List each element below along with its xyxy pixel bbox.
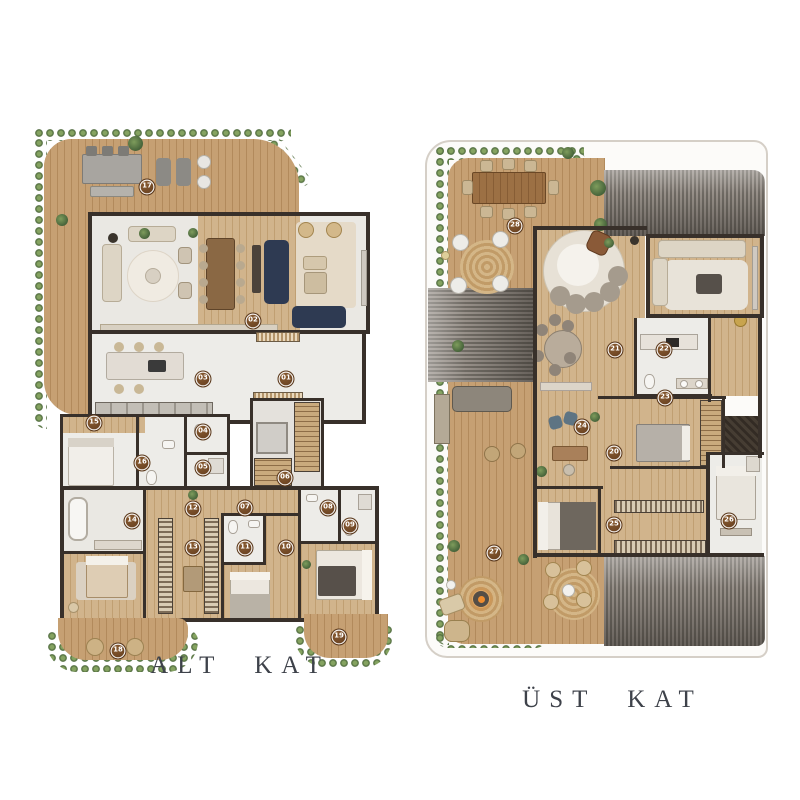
cooktop <box>666 338 679 347</box>
outdoor-lounge-chair <box>450 277 467 294</box>
curved-sofa-segment <box>566 294 586 314</box>
shower <box>746 456 760 472</box>
floor-lamp <box>441 251 450 260</box>
basket-chair <box>444 620 470 642</box>
stair-hall-floor <box>708 318 760 396</box>
outdoor-chair <box>524 160 537 172</box>
fire-flame <box>478 596 485 603</box>
outdoor-sofa <box>452 386 512 412</box>
outdoor-lounge-chair <box>576 592 592 608</box>
wall <box>708 318 711 402</box>
wall <box>535 486 603 489</box>
indoor-plant <box>604 238 614 248</box>
caption-alt-kat: ALT KAT <box>120 652 360 680</box>
toilet <box>644 374 655 389</box>
curved-sofa-segment <box>608 266 628 286</box>
wall <box>598 396 726 399</box>
outdoor-lounge-chair <box>576 560 592 576</box>
outdoor-chair <box>462 180 473 195</box>
bedroom-wing-floor <box>645 396 708 554</box>
bed-pillows <box>538 502 548 550</box>
round-dining-table <box>544 330 582 368</box>
wall <box>646 234 650 318</box>
outdoor-chair <box>502 208 515 220</box>
wall <box>598 486 601 557</box>
terrace-plant <box>448 540 460 552</box>
ceiling-lamp <box>630 236 639 245</box>
dining-chair <box>536 324 548 336</box>
console <box>540 382 592 391</box>
terrace-plant <box>518 554 529 565</box>
outdoor-chair <box>480 160 493 172</box>
terrace-plant <box>536 466 547 477</box>
roof-bottom-right <box>604 556 765 646</box>
wall <box>646 314 764 318</box>
outdoor-chair <box>524 206 537 218</box>
wall <box>646 234 764 238</box>
wicker-chair <box>484 446 500 462</box>
wall <box>533 553 764 557</box>
wall <box>760 234 764 318</box>
terrace-plant <box>562 147 574 159</box>
wardrobe <box>614 500 704 513</box>
outdoor-lounge-chair <box>543 594 559 610</box>
wall <box>533 226 537 558</box>
outdoor-dining-table <box>472 172 546 204</box>
floorplan-canvas: 01020304050607080910111213141516171819 2… <box>0 0 800 800</box>
coffee-table <box>696 274 722 294</box>
dining-chair <box>564 352 576 364</box>
indoor-plant <box>590 412 600 422</box>
desk <box>552 446 588 461</box>
wall <box>533 226 647 230</box>
bed-bench <box>720 528 752 536</box>
outdoor-lounge-chair <box>492 231 509 248</box>
tv-console <box>752 246 758 310</box>
family-sofa <box>652 258 668 306</box>
sink <box>680 380 688 388</box>
side-table <box>446 580 456 590</box>
caption-ust-kat: ÜST KAT <box>490 686 735 714</box>
family-sofa <box>658 240 746 258</box>
outdoor-chair <box>548 180 559 195</box>
dining-chair <box>549 364 561 376</box>
wall <box>758 318 762 458</box>
dining-chair <box>549 314 561 326</box>
outdoor-chair <box>480 206 493 218</box>
terrace-plant <box>590 180 606 196</box>
wall <box>706 452 764 455</box>
dining-chair <box>562 320 574 332</box>
wall <box>722 396 725 468</box>
terrace-side-table <box>562 584 575 597</box>
wicker-chair <box>510 443 526 459</box>
wall <box>706 452 710 557</box>
outdoor-lounge-chair <box>492 275 509 292</box>
desk-chair <box>563 464 575 476</box>
sink <box>695 380 703 388</box>
wall <box>610 466 710 469</box>
plan-ust-kat <box>0 0 800 800</box>
bed-pillows <box>682 426 690 460</box>
outdoor-kitchen <box>434 394 450 444</box>
outdoor-lounge-chair <box>545 562 561 578</box>
wardrobe <box>614 540 706 554</box>
roof-left <box>428 288 536 382</box>
terrace-plant <box>452 340 464 352</box>
wall <box>634 318 637 398</box>
outdoor-lounge-chair <box>452 234 469 251</box>
bed-blanket <box>560 502 596 550</box>
outdoor-chair <box>502 158 515 170</box>
